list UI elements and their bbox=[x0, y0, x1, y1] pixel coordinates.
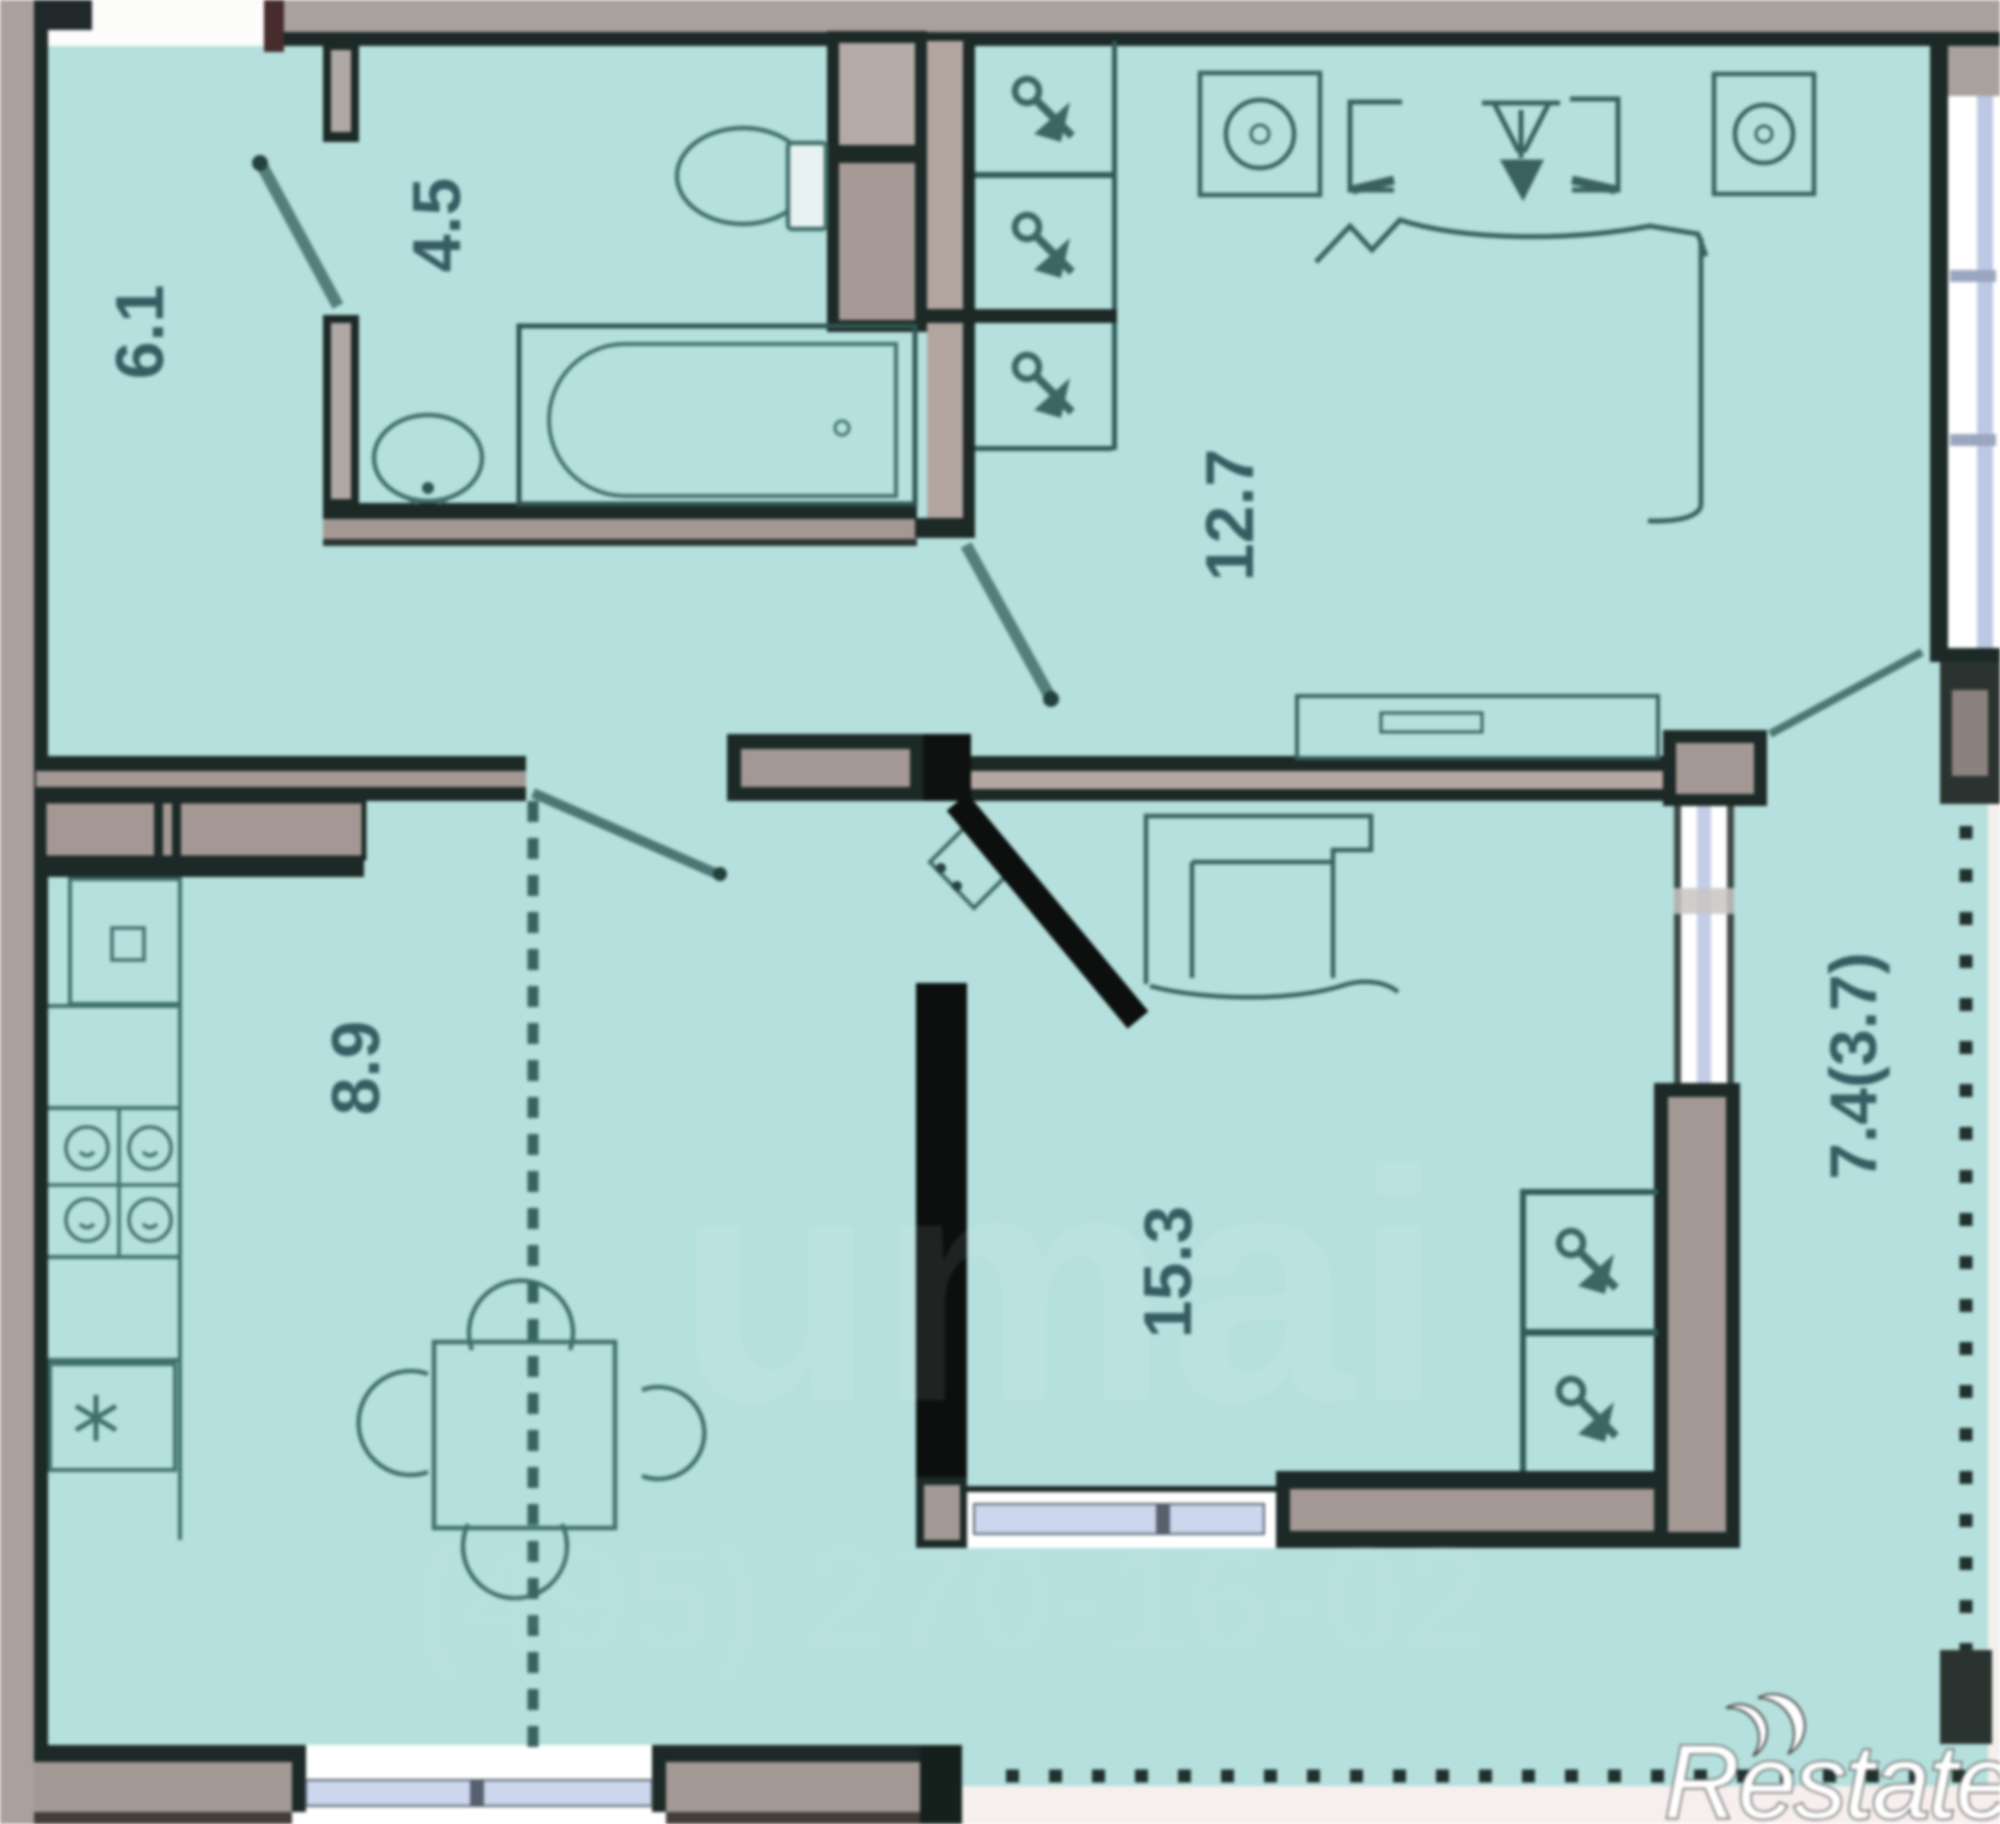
svg-text:12.7: 12.7 bbox=[1192, 449, 1268, 581]
svg-text:(495) 270-16-02: (495) 270-16-02 bbox=[412, 1514, 1488, 1682]
svg-text:15.3: 15.3 bbox=[1130, 1206, 1206, 1338]
svg-text:8.9: 8.9 bbox=[318, 1021, 394, 1116]
svg-text:Restate: Restate bbox=[1664, 1724, 2000, 1824]
svg-text:7.4(3.7): 7.4(3.7) bbox=[1816, 952, 1890, 1179]
svg-text:umai: umai bbox=[675, 1101, 1445, 1470]
svg-text:4.5: 4.5 bbox=[399, 178, 475, 273]
svg-text:6.1: 6.1 bbox=[102, 285, 178, 380]
